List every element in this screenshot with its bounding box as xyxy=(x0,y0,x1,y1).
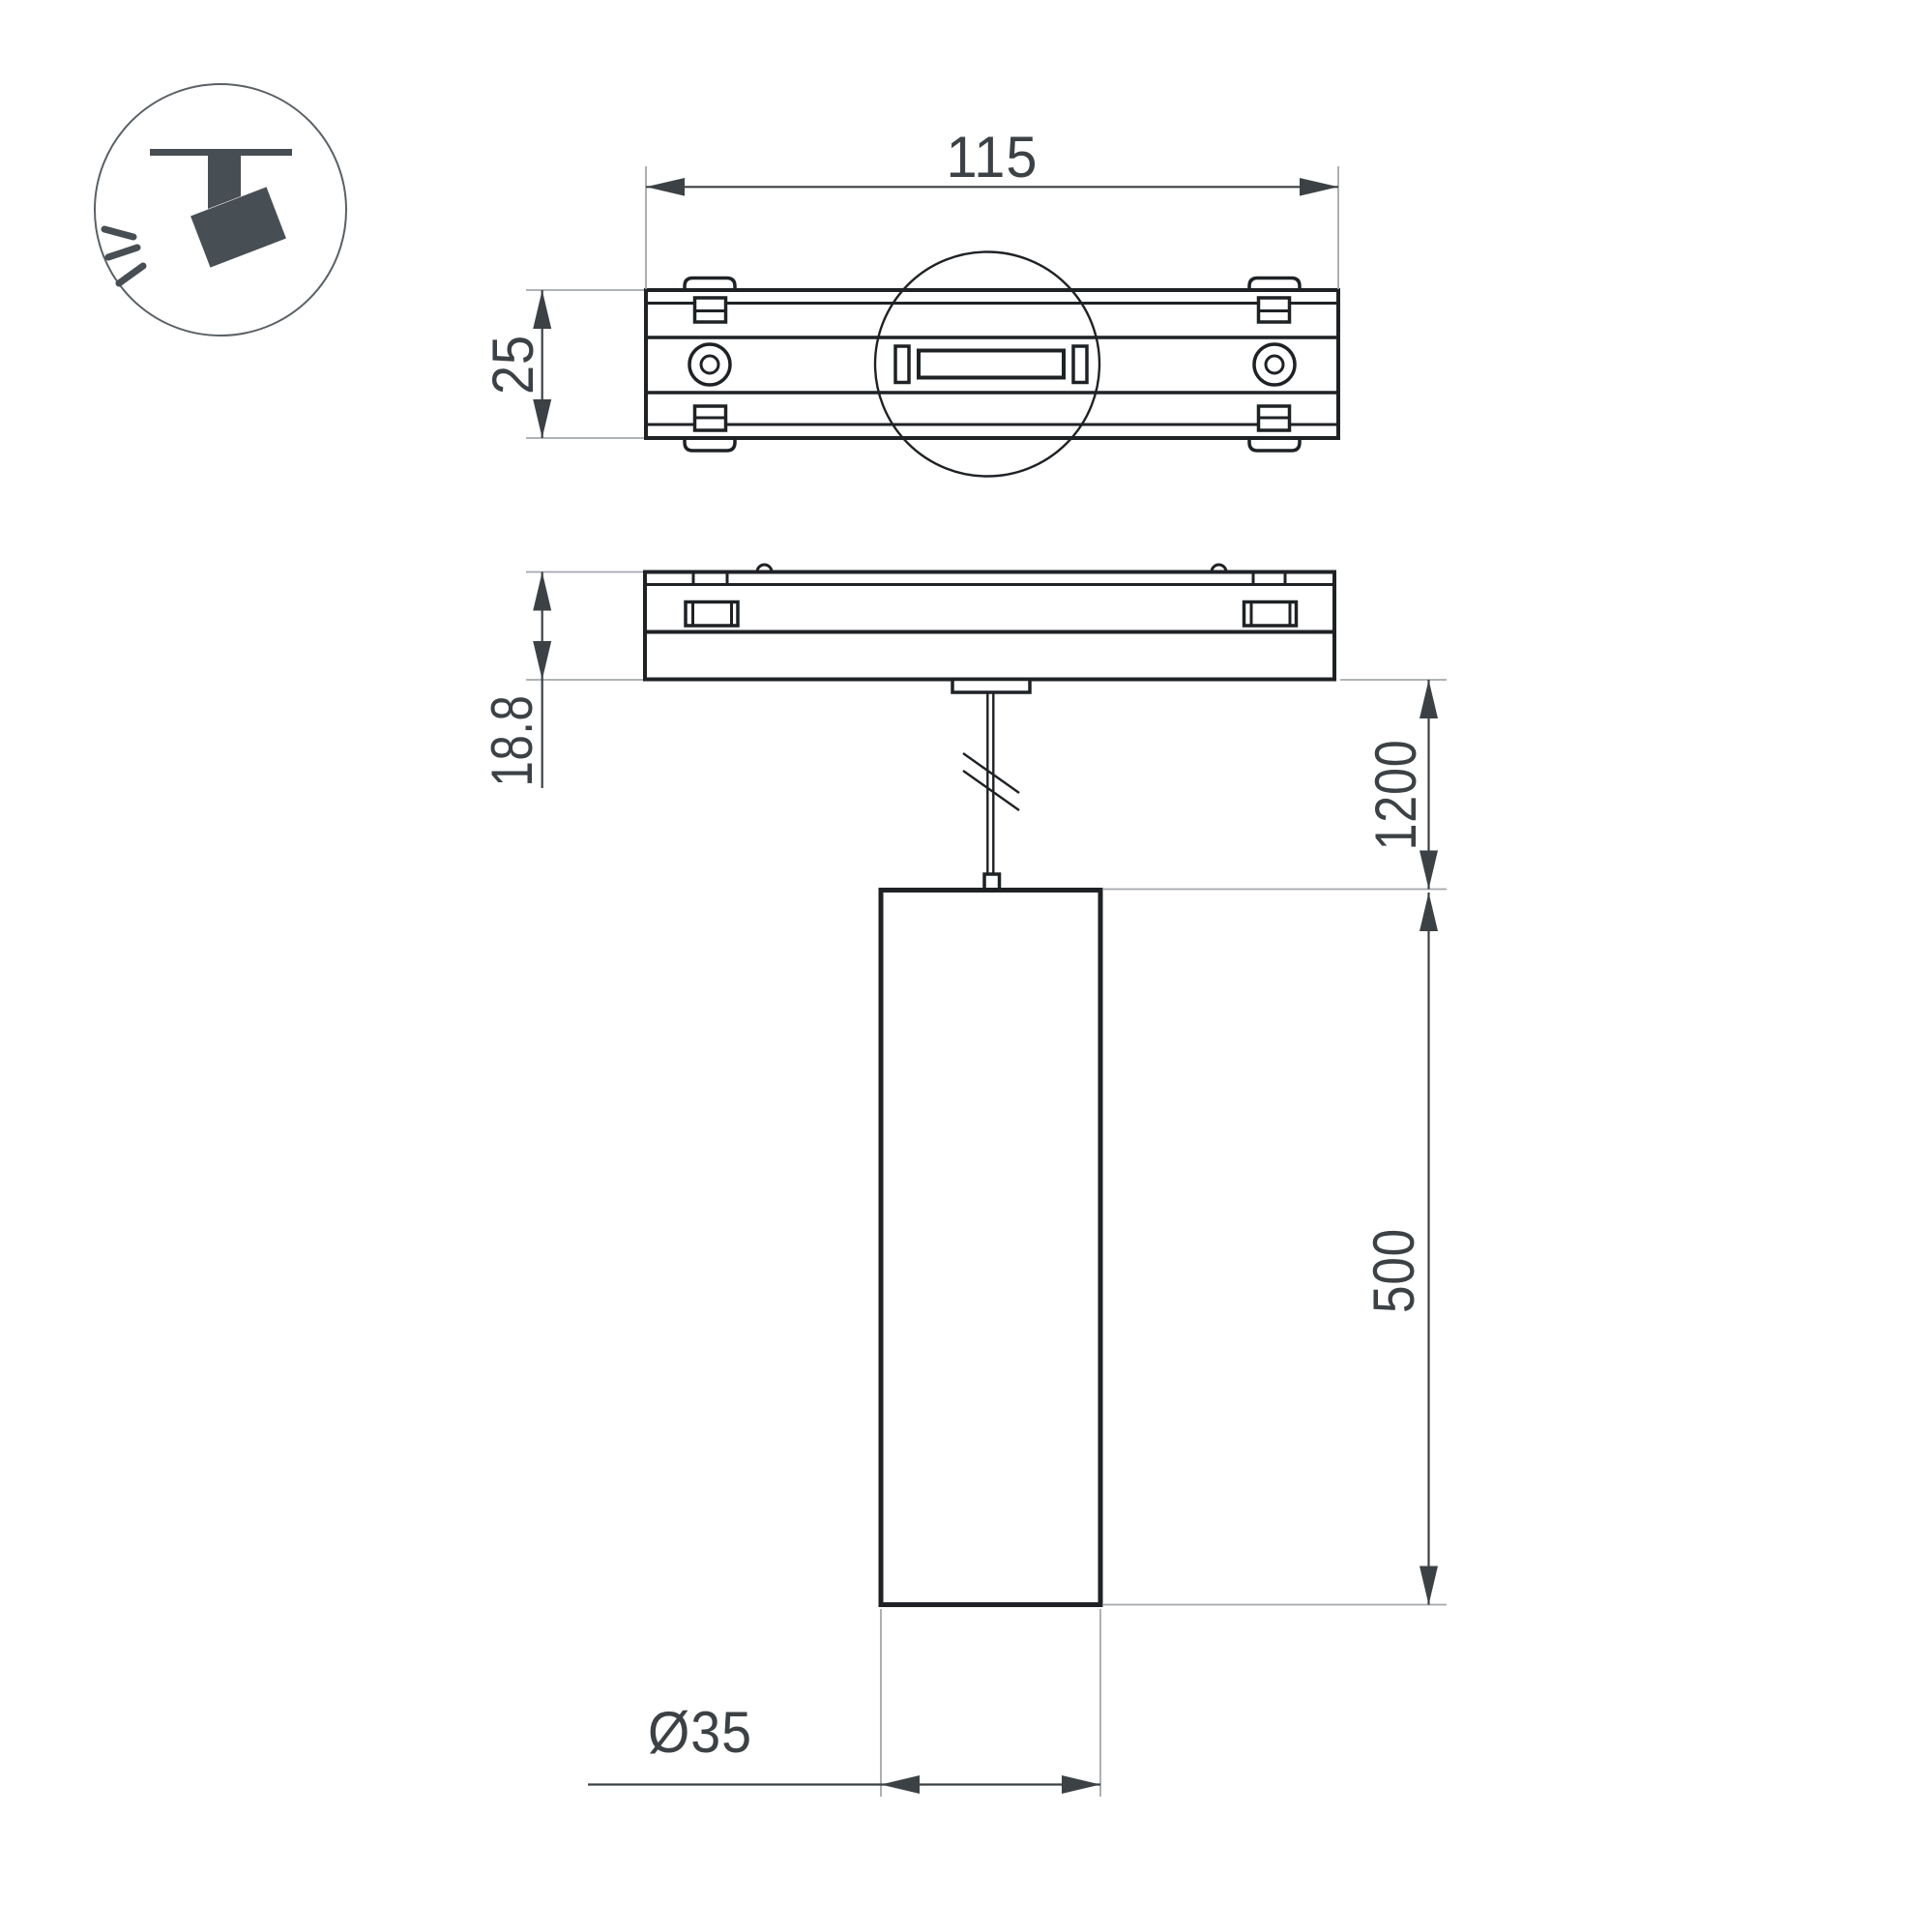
dim-body-height: 500 xyxy=(1103,893,1447,1605)
arrow-up-icon xyxy=(533,290,551,329)
contact-slot xyxy=(919,351,1064,378)
screw-outer xyxy=(1254,344,1295,385)
side-view xyxy=(645,565,1334,692)
break-slash xyxy=(963,771,1019,810)
arrow-up-icon xyxy=(533,572,551,611)
slot-key-right xyxy=(1073,346,1087,383)
dim-body-height-label: 500 xyxy=(1361,1228,1426,1313)
side-clip-left xyxy=(686,602,738,627)
clip-top-left xyxy=(695,298,726,322)
mount-screw-right xyxy=(1254,344,1295,385)
top-view xyxy=(646,252,1338,477)
screw-outer xyxy=(689,344,730,385)
arrow-down-icon xyxy=(1420,851,1438,890)
dim-body-diameter: Ø35 xyxy=(588,1609,1100,1797)
dim-track-width-label: 25 xyxy=(481,335,545,395)
pendant-cylinder xyxy=(881,891,1100,1605)
cable-gland xyxy=(952,680,1030,693)
arrow-left-icon xyxy=(646,178,685,196)
clip-top-right xyxy=(1259,298,1290,322)
clip-bottom-left xyxy=(695,406,726,430)
dim-track-width: 25 xyxy=(481,290,644,438)
arrow-up-icon xyxy=(1420,893,1438,931)
slot-key-left xyxy=(895,346,909,383)
arrow-left-icon xyxy=(881,1775,920,1794)
dim-adapter-height-label: 18.8 xyxy=(480,695,544,787)
pendant xyxy=(881,692,1100,1605)
cable-break-icon xyxy=(963,753,1019,810)
clip-bottom-right xyxy=(1259,406,1290,430)
arrow-right-icon xyxy=(1300,178,1338,196)
side-view-body xyxy=(645,572,1334,680)
dim-track-length: 115 xyxy=(646,125,1338,289)
dim-track-length-label: 115 xyxy=(947,125,1039,190)
mount-screw-left xyxy=(689,344,730,385)
drawing-canvas: 115 25 18.8 1200 500 xyxy=(0,0,1932,1932)
arrow-down-icon xyxy=(1420,1566,1438,1605)
dim-adapter-height: 18.8 xyxy=(480,572,643,789)
break-slash xyxy=(963,753,1019,793)
dim-suspension-length: 1200 xyxy=(1103,680,1447,890)
dim-body-diameter-label: Ø35 xyxy=(648,1700,752,1765)
arrow-down-icon xyxy=(533,641,551,680)
dimension-drawing: 115 25 18.8 1200 500 xyxy=(0,0,1932,1932)
arrow-right-icon xyxy=(1062,1775,1100,1794)
track-spotlight-icon xyxy=(95,84,346,336)
side-clip-right xyxy=(1244,602,1297,627)
arrow-up-icon xyxy=(1420,680,1438,718)
dim-suspension-length-label: 1200 xyxy=(1363,740,1428,851)
arrow-down-icon xyxy=(533,399,551,438)
